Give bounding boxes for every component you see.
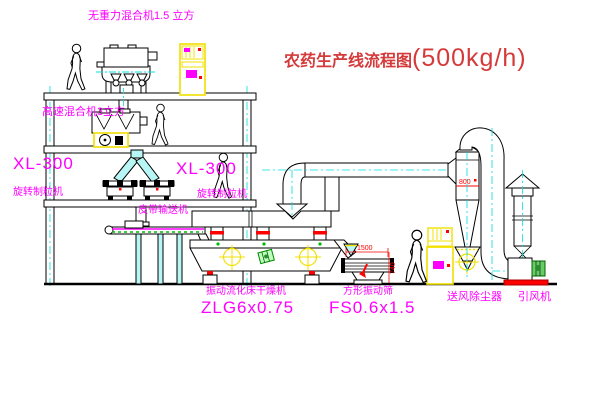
flex-connectors xyxy=(210,227,327,240)
fan-base xyxy=(504,280,548,285)
label-dryer-model: ZLG6x0.75 xyxy=(201,299,294,316)
control-cabinet-1 xyxy=(180,44,205,95)
label-granulator-left-model: XL-300 xyxy=(13,155,74,172)
label-dust-collector: 送风除尘器 xyxy=(447,292,502,303)
dryer-feet xyxy=(203,271,319,284)
person-figure xyxy=(406,230,426,282)
label-high-speed-mixer: 高速混合机3立方 xyxy=(42,107,125,118)
title-zh: 农药生产线流程图 xyxy=(284,53,412,70)
dimension-800: 800 xyxy=(459,179,471,186)
cabinet-buttons xyxy=(433,261,444,269)
induced-draft-fan xyxy=(504,258,548,285)
cad-drawing-canvas: 1500 740 800 xyxy=(0,0,600,403)
granulator-left xyxy=(103,180,137,200)
cabinet-buttons xyxy=(186,70,197,78)
svg-text:1500: 1500 xyxy=(357,245,373,252)
label-screen-model: FS0.6x1.5 xyxy=(329,299,416,316)
label-granulator-left-name: 旋转制粒机 xyxy=(13,188,63,198)
label-gravity-mixer: 无重力混合机1.5 立方 xyxy=(88,11,194,22)
label-induced-fan: 引风机 xyxy=(518,292,551,303)
y-chute xyxy=(114,150,159,182)
person-figure xyxy=(67,44,85,90)
svg-text:740: 740 xyxy=(390,262,397,274)
top-floor-slab xyxy=(44,93,256,100)
person-figure xyxy=(152,104,168,145)
control-cabinet-2 xyxy=(427,228,453,284)
label-belt-conveyor: 皮带输送机 xyxy=(138,206,188,216)
title-capacity: (500kg/h) xyxy=(412,44,527,72)
label-granulator-mid-model: XL-300 xyxy=(176,160,237,177)
dryer-vent-stub xyxy=(325,177,339,211)
exhaust-stack xyxy=(506,170,539,262)
label-screen-name: 方形振动筛 xyxy=(343,287,393,297)
second-floor-slab xyxy=(44,146,256,153)
discharge-funnel xyxy=(455,247,480,274)
label-granulator-mid-name: 旋转制粒机 xyxy=(197,190,247,200)
label-dryer-name: 振动流化床干燥机 xyxy=(206,287,286,297)
granulator-right xyxy=(140,180,174,200)
drawing-title: 农药生产线流程图(500kg/h) xyxy=(284,44,527,73)
fluid-bed-dryer xyxy=(190,211,358,284)
gravity-mixer xyxy=(96,45,157,93)
dimension-740: 740 xyxy=(389,252,397,283)
exhaust-duct xyxy=(262,163,455,222)
